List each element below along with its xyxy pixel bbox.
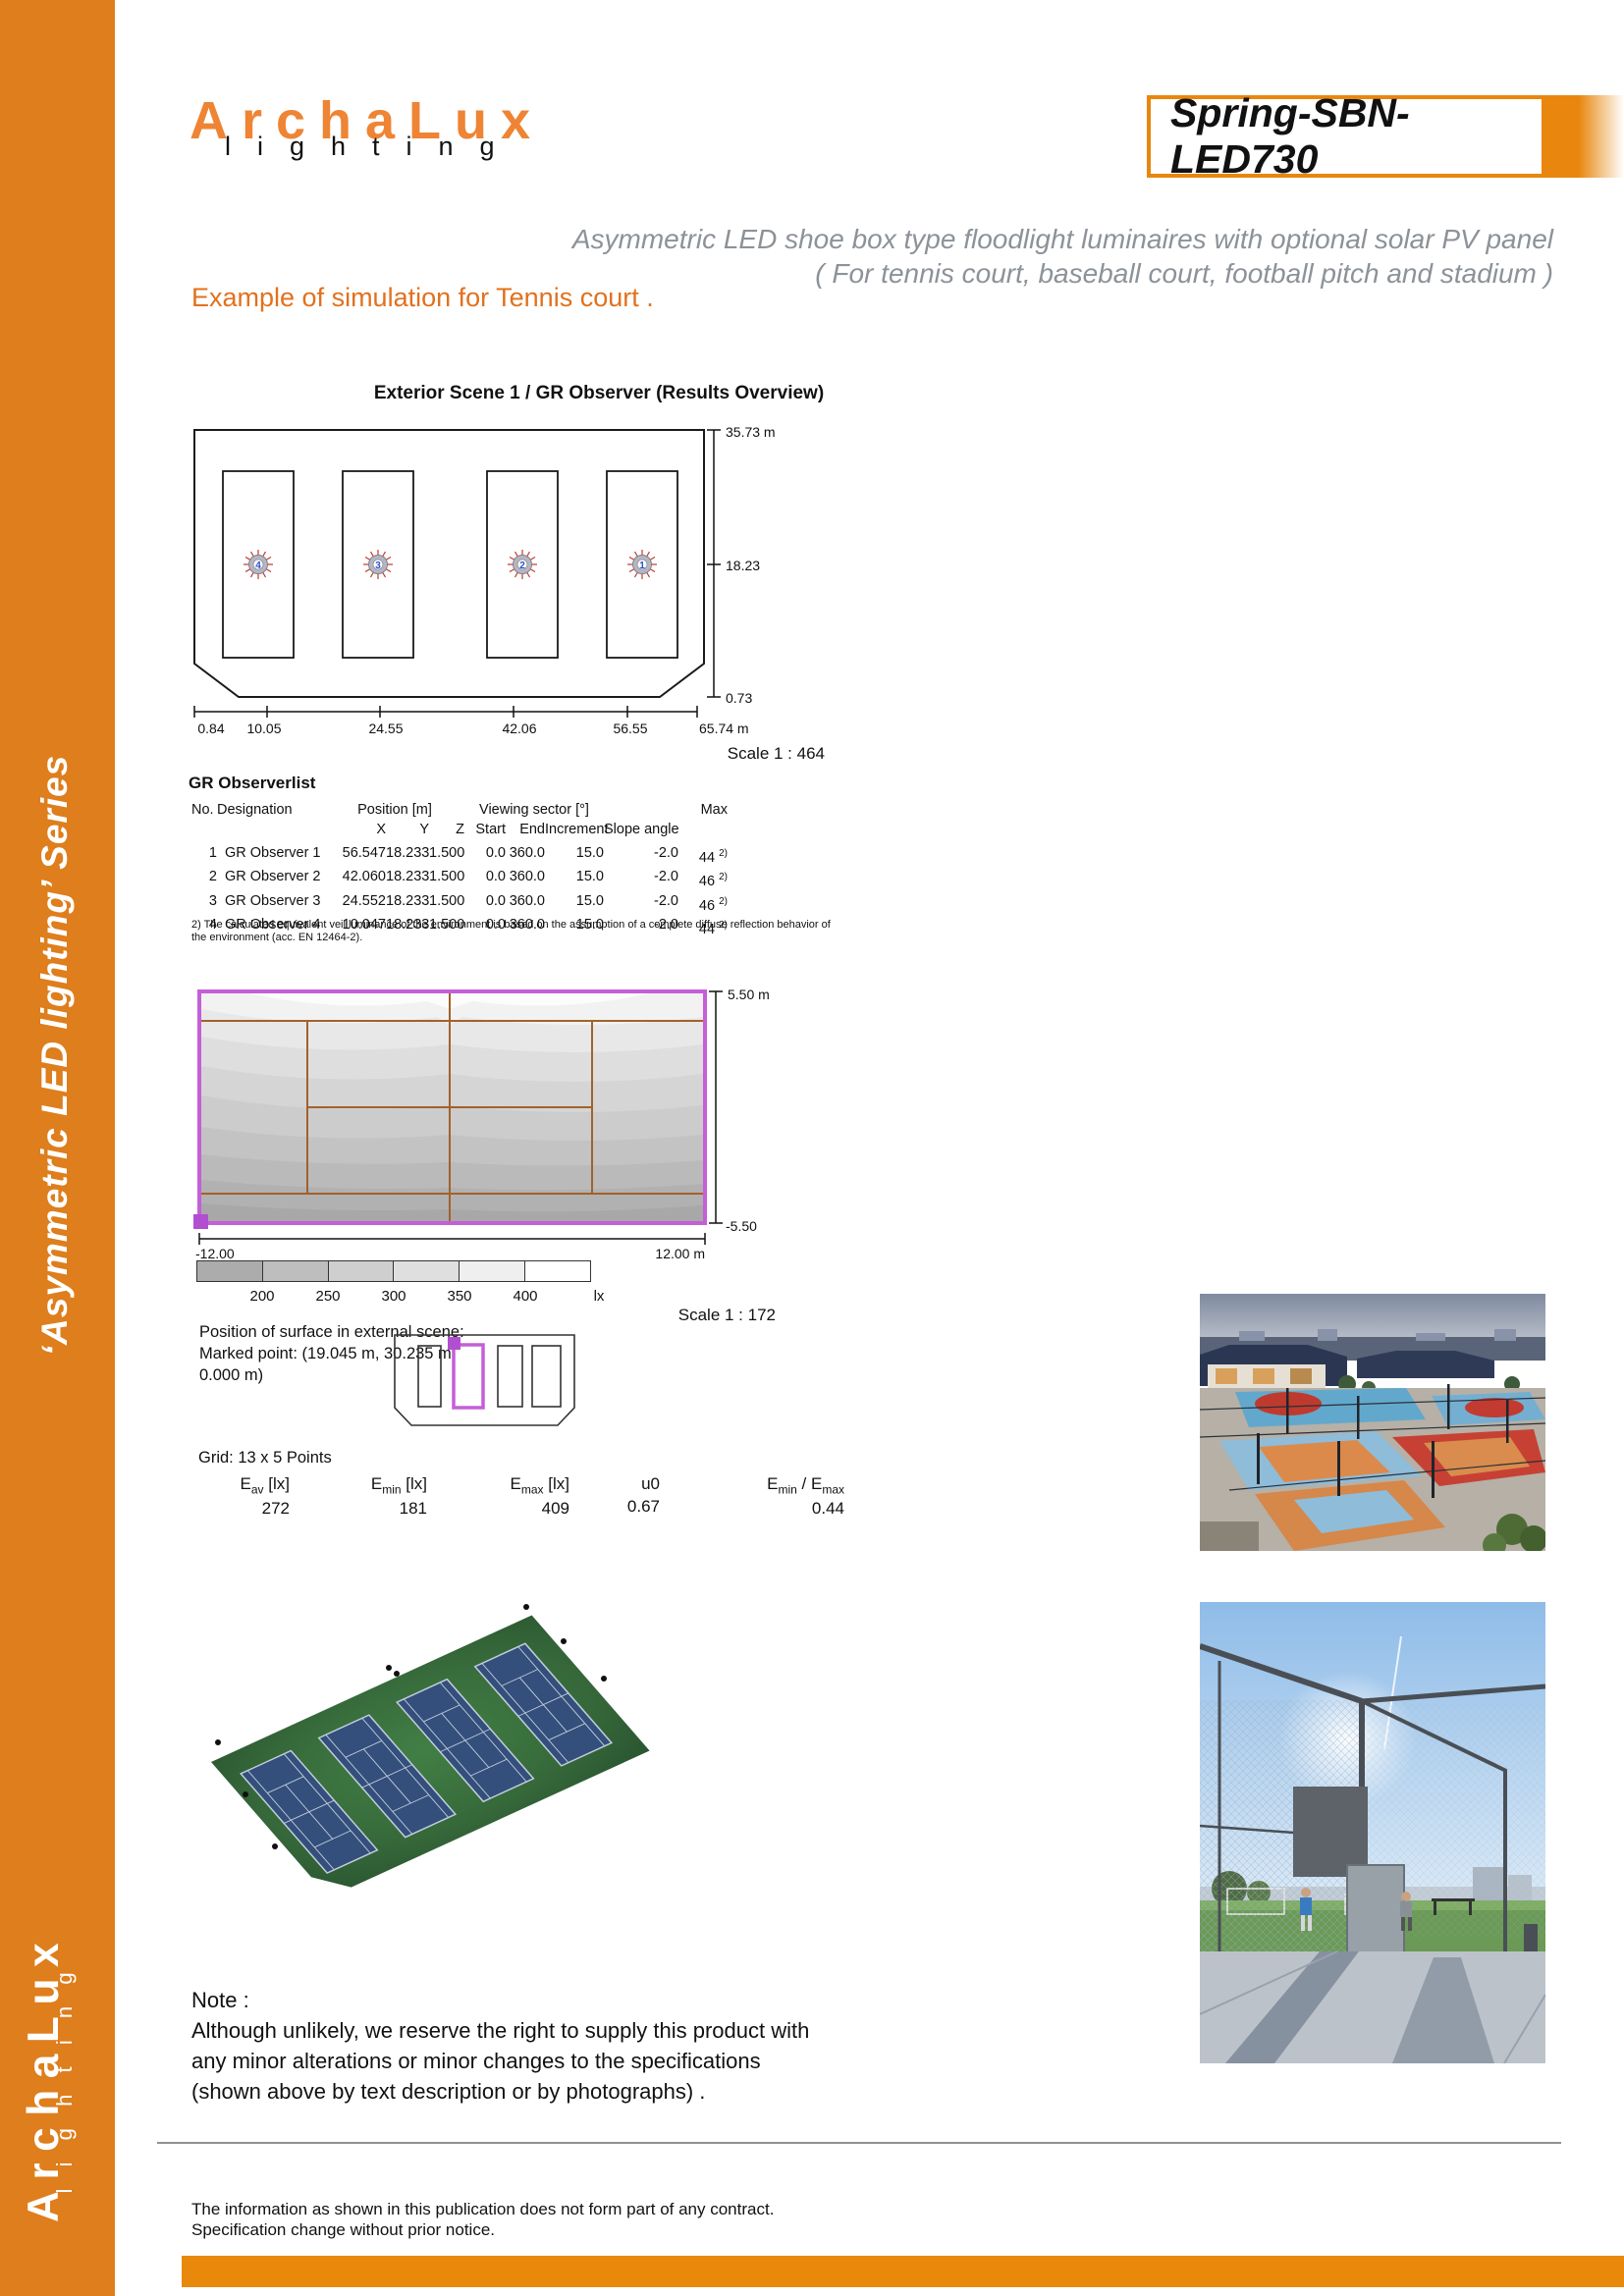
col-header-start: Start	[464, 821, 506, 840]
sidebar-brand-logo: ArchaLux lighting	[19, 1900, 99, 2222]
product-title-box: Spring-SBN-LED730	[1147, 95, 1545, 178]
product-code: Spring-SBN-LED730	[1170, 90, 1542, 183]
sidebar-accent-band: ‘Asymmetric LED lighting’ Series ArchaLu…	[0, 0, 115, 2296]
cell-increment: 15.0	[545, 868, 604, 891]
x-axis-label: 10.05	[246, 721, 281, 736]
col-group-viewing: Viewing sector [°]	[464, 801, 604, 821]
subtitle-line-2: ( For tennis court, baseball court, foot…	[550, 256, 1553, 291]
legend-label: 200	[249, 1288, 274, 1305]
isolux-diagram: 5.50 m -5.50 -12.00 12.00 m	[191, 980, 820, 1264]
subtitle-line-1: Asymmetric LED shoe box type floodlight …	[550, 222, 1553, 256]
court-rect	[418, 1346, 441, 1407]
isolux-scale: Scale 1 : 172	[609, 1306, 776, 1325]
col-header-slope: Slope angle	[604, 821, 678, 840]
cell-designation: GR Observer 2	[217, 868, 325, 891]
dim-label-top: 35.73 m	[726, 425, 776, 440]
observer-number: 4	[255, 561, 261, 571]
datasheet-page: ‘Asymmetric LED lighting’ Series ArchaLu…	[0, 0, 1624, 2296]
cell-slope: -2.0	[604, 868, 678, 891]
brand-logo: ArchaLux lighting	[189, 90, 582, 188]
scene1-title: Exterior Scene 1 / GR Observer (Results …	[295, 383, 903, 404]
selected-surface	[454, 1345, 483, 1408]
isolux-legend-labels: 200 250 300 350 400 lx	[196, 1288, 628, 1308]
scene1-title-main: GR Observer (Results Overview)	[536, 383, 825, 403]
bottom-accent-bar	[182, 2256, 1624, 2287]
photo-courts-aerial	[1200, 1294, 1545, 1551]
cell-no: 1	[191, 844, 217, 868]
cell-increment: 15.0	[545, 844, 604, 868]
cell-end: 360.0	[506, 892, 545, 916]
metric-emin: Emin [lx] 181	[290, 1474, 427, 1519]
cell-max: 44 2)	[678, 844, 728, 868]
col-header-end: End	[506, 821, 545, 840]
observer-number: 3	[375, 561, 381, 571]
x-axis-label: 65.74 m	[699, 721, 749, 736]
cell-max: 46 2)	[678, 892, 728, 916]
footer-divider	[157, 2142, 1561, 2144]
cell-z: 1.500	[429, 868, 464, 891]
cell-x: 42.060	[325, 868, 386, 891]
cell-increment: 15.0	[545, 892, 604, 916]
metric-eav: Eav [lx] 272	[152, 1474, 290, 1519]
cell-slope: -2.0	[604, 892, 678, 916]
cell-x: 24.552	[325, 892, 386, 916]
brand-sub: lighting	[52, 1950, 77, 2193]
legend-unit: lx	[594, 1288, 605, 1305]
marked-point	[448, 1337, 460, 1350]
scene1-scale: Scale 1 : 464	[628, 744, 825, 764]
x-axis-label: 56.55	[613, 721, 647, 736]
cell-y: 18.233	[386, 892, 429, 916]
plan-diagram: 4 3 2 1 35.73 m 18.23 0.73 0.84 10.05 24…	[191, 425, 879, 769]
legend-label: 350	[447, 1288, 471, 1305]
isolux-legend-bar	[196, 1260, 591, 1282]
title-orange-accent	[1545, 95, 1624, 178]
grid-label: Grid: 13 x 5 Points	[198, 1449, 332, 1468]
court-rect	[532, 1346, 561, 1407]
brand-sub: lighting	[225, 132, 521, 162]
observer-number: 2	[519, 561, 525, 571]
metric-emin-emax: Emin / Emax 0.44	[707, 1474, 844, 1519]
dim-label-bottom: -5.50	[726, 1218, 757, 1234]
marked-point	[193, 1214, 208, 1229]
cell-z: 1.500	[429, 892, 464, 916]
col-header-max: Max	[678, 801, 728, 821]
dim-label-top: 5.50 m	[728, 987, 770, 1002]
court-rect	[498, 1346, 522, 1407]
col-header-z: Z	[429, 821, 464, 840]
col-group-position: Position [m]	[325, 801, 464, 821]
product-subtitle: Asymmetric LED shoe box type floodlight …	[550, 222, 1553, 291]
cell-y: 18.233	[386, 868, 429, 891]
col-header-y: Y	[386, 821, 429, 840]
note-block: Note : Although unlikely, we reserve the…	[191, 1985, 809, 2107]
photo-field-entrance	[1200, 1602, 1545, 2063]
x-axis-label: 24.55	[368, 721, 403, 736]
legend-label: 400	[513, 1288, 537, 1305]
cell-start: 0.0	[464, 868, 506, 891]
col-header-x: X	[325, 821, 386, 840]
note-title: Note :	[191, 1985, 809, 2015]
col-header-no: No.	[191, 801, 217, 821]
legend-label: 300	[381, 1288, 406, 1305]
legend-label: 250	[315, 1288, 340, 1305]
footer-disclaimer: The information as shown in this publica…	[191, 2199, 774, 2240]
axis-left-label: -12.00	[195, 1246, 235, 1261]
cell-end: 360.0	[506, 844, 545, 868]
axis-right-label: 12.00 m	[655, 1246, 705, 1261]
cell-designation: GR Observer 1	[217, 844, 325, 868]
cell-slope: -2.0	[604, 844, 678, 868]
illuminance-metrics: Eav [lx] 272 Emin [lx] 181 Emax [lx] 409…	[172, 1474, 879, 1533]
dim-label-mid: 18.23	[726, 558, 760, 573]
cell-end: 360.0	[506, 868, 545, 891]
observer-number: 1	[639, 561, 645, 571]
x-axis-label: 42.06	[502, 721, 536, 736]
series-label: ‘Asymmetric LED lighting’ Series	[34, 755, 76, 1357]
col-header-designation: Designation	[217, 801, 325, 821]
metric-u0: u0 0.67	[522, 1474, 660, 1517]
scene-position-diagram	[393, 1333, 589, 1436]
col-header-increment: Increment	[545, 821, 604, 840]
cell-start: 0.0	[464, 844, 506, 868]
dim-label-bottom: 0.73	[726, 690, 752, 706]
cell-max: 46 2)	[678, 868, 728, 891]
product-title-bar: Spring-SBN-LED730	[1147, 95, 1624, 178]
cell-z: 1.500	[429, 844, 464, 868]
cell-no: 2	[191, 868, 217, 891]
scene1-title-prefix: Exterior Scene 1 /	[374, 383, 536, 403]
cell-designation: GR Observer 3	[217, 892, 325, 916]
table-footnote: 2) The calculated equivalent veil lumina…	[191, 919, 835, 944]
x-axis-label: 0.84	[197, 721, 224, 736]
cell-no: 3	[191, 892, 217, 916]
observer-table-heading: GR Observerlist	[189, 774, 315, 793]
cell-start: 0.0	[464, 892, 506, 916]
field-surface	[211, 1616, 650, 1898]
render-3d	[177, 1585, 727, 1978]
section-heading: Example of simulation for Tennis court .	[191, 283, 654, 313]
cell-x: 56.547	[325, 844, 386, 868]
cell-y: 18.233	[386, 844, 429, 868]
